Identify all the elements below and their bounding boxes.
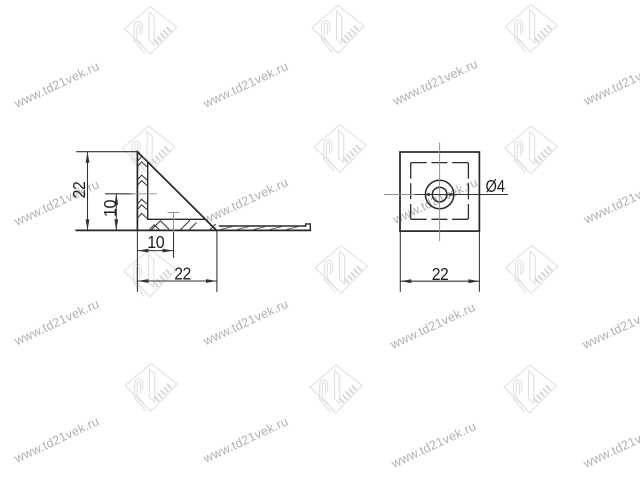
svg-text:22: 22 [174, 264, 191, 284]
svg-text:22: 22 [69, 182, 89, 199]
svg-text:10: 10 [100, 199, 120, 217]
svg-text:Ø4: Ø4 [486, 176, 506, 196]
svg-text:10: 10 [147, 232, 165, 252]
svg-text:22: 22 [432, 264, 449, 284]
